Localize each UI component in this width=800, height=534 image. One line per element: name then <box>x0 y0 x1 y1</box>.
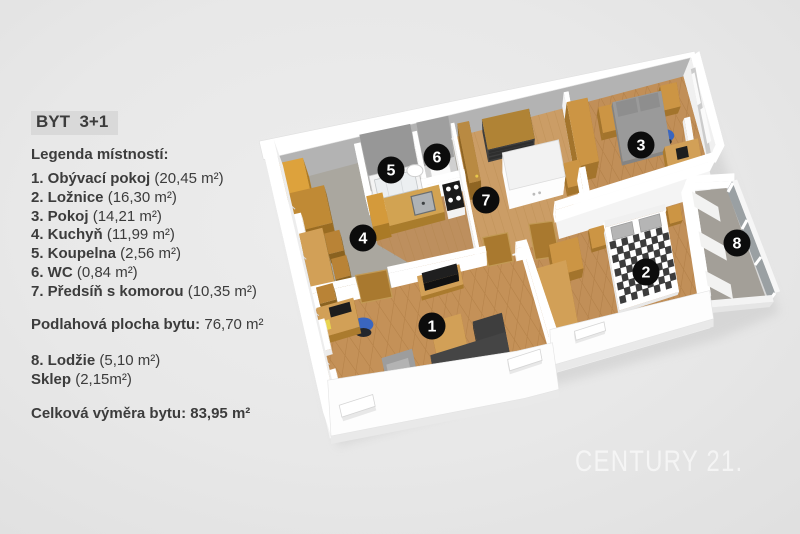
svg-text:8: 8 <box>733 236 742 253</box>
svg-text:1: 1 <box>428 319 437 336</box>
svg-text:7: 7 <box>482 193 491 210</box>
svg-text:2: 2 <box>642 265 651 282</box>
svg-text:4: 4 <box>359 231 368 248</box>
svg-text:6: 6 <box>433 150 442 167</box>
svg-text:3: 3 <box>637 138 646 155</box>
svg-text:5: 5 <box>387 163 396 180</box>
